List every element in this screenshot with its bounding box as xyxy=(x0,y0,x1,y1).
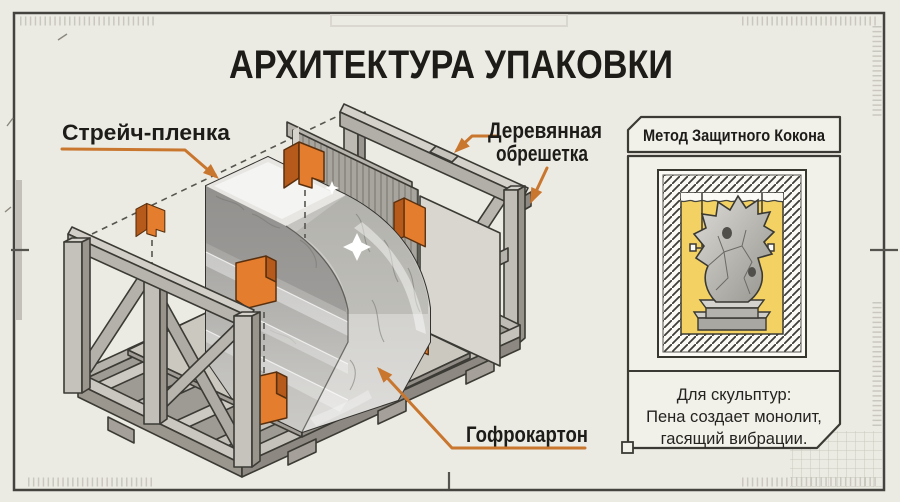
label-stretch-film: Стрейч-пленка xyxy=(62,120,231,145)
panel-header: Метод Защитного Кокона xyxy=(643,126,825,145)
label-wooden-crate-line1: Деревянная xyxy=(488,118,602,143)
corner-handle xyxy=(622,442,633,453)
crate-illustration: Стрейч-пленка Деревянная обрешетка Гофро… xyxy=(62,104,602,477)
label-wooden-crate-line2: обрешетка xyxy=(496,141,589,166)
top-title-slot xyxy=(331,15,567,26)
page-title: АРХИТЕКТУРА УПАКОВКИ xyxy=(229,43,673,87)
stretch-film-arrow xyxy=(62,149,223,184)
corner-protector xyxy=(236,256,276,308)
panel-caption-line2: Пена создает монолит, xyxy=(646,408,822,426)
cocoon-illustration xyxy=(658,170,806,357)
corner-protector xyxy=(136,203,165,236)
cocoon-method-panel: Метод Защитного Кокона Для скульптур: Пе… xyxy=(622,117,840,453)
diagram-canvas: АРХИТЕКТУРА УПАКОВКИ xyxy=(0,0,900,502)
infographic-page: АРХИТЕКТУРА УПАКОВКИ xyxy=(0,0,900,502)
panel-caption-line3: гасящий вибрации. xyxy=(661,430,808,448)
label-cardboard: Гофрокартон xyxy=(466,422,588,447)
panel-caption-line1: Для скульптур: xyxy=(677,386,792,404)
